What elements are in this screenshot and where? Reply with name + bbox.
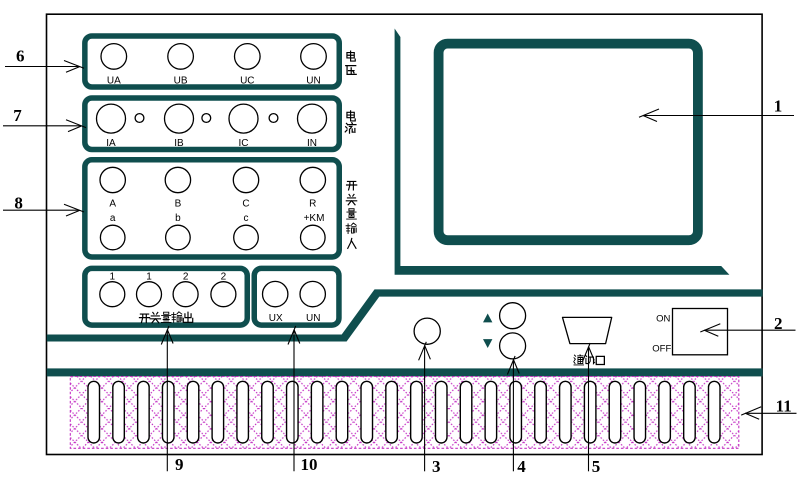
svg-text:4: 4	[517, 457, 526, 476]
svg-text:10: 10	[301, 455, 318, 474]
svg-text:IA: IA	[106, 138, 116, 149]
svg-text:A: A	[109, 198, 116, 209]
svg-text:3: 3	[432, 457, 441, 476]
svg-text:6: 6	[16, 47, 25, 66]
svg-text:OFF: OFF	[652, 343, 671, 354]
svg-text:R: R	[309, 198, 316, 209]
svg-text:UN: UN	[306, 313, 320, 324]
svg-text:+KM: +KM	[304, 213, 325, 224]
svg-text:UX: UX	[269, 313, 283, 324]
svg-text:ON: ON	[656, 313, 670, 324]
svg-text:C: C	[242, 198, 249, 209]
svg-text:1: 1	[774, 96, 783, 115]
svg-text:2: 2	[221, 272, 227, 283]
svg-text:B: B	[175, 198, 182, 209]
svg-text:2: 2	[774, 314, 783, 333]
svg-text:1: 1	[110, 272, 116, 283]
svg-text:8: 8	[14, 194, 23, 213]
svg-text:UA: UA	[107, 75, 121, 86]
svg-text:11: 11	[776, 396, 792, 415]
svg-text:IC: IC	[239, 138, 249, 149]
svg-text:9: 9	[175, 455, 184, 474]
svg-text:1: 1	[146, 272, 152, 283]
svg-text:5: 5	[592, 457, 601, 476]
svg-text:UN: UN	[306, 75, 320, 86]
svg-text:b: b	[175, 213, 181, 224]
svg-text:UC: UC	[240, 75, 254, 86]
svg-text:UB: UB	[174, 75, 188, 86]
svg-text:2: 2	[183, 272, 189, 283]
svg-text:7: 7	[13, 106, 22, 125]
svg-text:a: a	[110, 213, 116, 224]
svg-text:c: c	[244, 213, 249, 224]
svg-text:IB: IB	[174, 138, 184, 149]
svg-text:IN: IN	[307, 138, 317, 149]
